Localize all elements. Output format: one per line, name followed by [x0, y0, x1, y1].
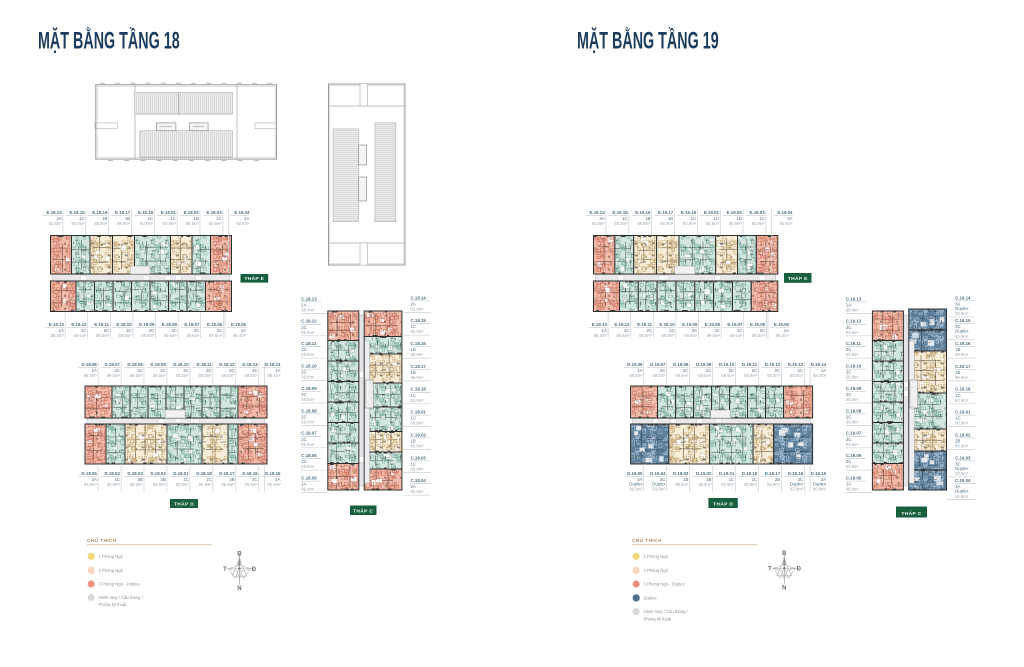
svg-text:C.19.15: C.19.15: [955, 318, 971, 323]
svg-text:88.9m²: 88.9m²: [153, 482, 167, 487]
svg-text:D.18.07: D.18.07: [105, 362, 121, 367]
svg-text:59.6m²: 59.6m²: [73, 333, 87, 338]
svg-text:B: B: [237, 551, 242, 557]
svg-text:60.9m²: 60.9m²: [744, 482, 758, 487]
svg-text:63.9m²: 63.9m²: [790, 487, 804, 492]
svg-text:59.6m²: 59.6m²: [846, 397, 860, 402]
svg-text:92.5m²: 92.5m²: [84, 482, 98, 487]
svg-text:85.9m²: 85.9m²: [411, 444, 425, 449]
svg-text:59.6m²: 59.6m²: [141, 333, 155, 338]
svg-text:59.6m²: 59.6m²: [301, 419, 315, 424]
svg-text:E.19.15: E.19.15: [612, 210, 628, 215]
svg-text:59.6m²: 59.6m²: [846, 464, 860, 469]
svg-text:E.18.17: E.18.17: [115, 210, 131, 215]
svg-text:C.19.07: C.19.07: [846, 431, 862, 436]
svg-text:E.18.13: E.18.13: [49, 322, 65, 327]
svg-text:60.9m²: 60.9m²: [140, 221, 154, 226]
svg-text:85.9m²: 85.9m²: [955, 444, 969, 449]
svg-text:E.19.07: E.19.07: [727, 322, 743, 327]
svg-text:59.5m²: 59.5m²: [222, 373, 236, 378]
svg-text:C.19.10: C.19.10: [846, 364, 862, 369]
svg-text:3 Phòng Ngủ - Duplex: 3 Phòng Ngủ - Duplex: [644, 582, 686, 587]
svg-text:88.4m²: 88.4m²: [301, 307, 315, 312]
svg-text:92.6m²: 92.6m²: [592, 221, 606, 226]
svg-text:60.9m²: 60.9m²: [209, 221, 223, 226]
svg-text:C.19.18: C.19.18: [955, 387, 971, 392]
svg-text:88.9m²: 88.9m²: [637, 221, 651, 226]
svg-text:88.4m²: 88.4m²: [267, 373, 281, 378]
svg-text:E.18.11: E.18.11: [94, 322, 109, 327]
svg-text:C.19.11: C.19.11: [846, 341, 862, 346]
svg-text:D.19.09: D.19.09: [696, 362, 712, 367]
svg-text:85.9m²: 85.9m²: [186, 221, 200, 226]
svg-text:59.5m²: 59.5m²: [652, 373, 666, 378]
svg-text:D.19.05: D.19.05: [627, 471, 643, 476]
svg-text:C.19.06: C.19.06: [846, 453, 862, 458]
svg-text:59.6m²: 59.6m²: [119, 333, 133, 338]
svg-text:Hành lang / Cầu thang /: Hành lang / Cầu thang /: [644, 609, 689, 614]
svg-text:E.19.09: E.19.09: [682, 322, 698, 327]
svg-text:E.19.18: E.19.18: [681, 210, 697, 215]
svg-text:63.9m²: 63.9m²: [955, 334, 969, 339]
svg-text:Phòng kỹ thuật: Phòng kỹ thuật: [644, 616, 673, 621]
svg-text:88.9m²: 88.9m²: [130, 482, 144, 487]
svg-text:60.9m²: 60.9m²: [176, 482, 190, 487]
svg-text:59.5m²: 59.5m²: [199, 373, 213, 378]
svg-text:60.9m²: 60.9m²: [683, 221, 697, 226]
svg-text:D.19.15: D.19.15: [811, 471, 827, 476]
svg-text:E.19.01: E.19.01: [704, 210, 720, 215]
svg-text:92.6m²: 92.6m²: [236, 221, 250, 226]
svg-text:C.19.05: C.19.05: [846, 476, 862, 481]
svg-text:D.19.03: D.19.03: [673, 471, 689, 476]
svg-text:T: T: [223, 567, 227, 573]
svg-text:D.18.11: D.18.11: [197, 362, 213, 367]
svg-text:88.9m²: 88.9m²: [411, 352, 425, 357]
svg-text:88.9m²: 88.9m²: [411, 375, 425, 380]
svg-text:B: B: [782, 551, 787, 557]
svg-text:D.18.12: D.18.12: [219, 362, 235, 367]
svg-text:C.18.07: C.18.07: [301, 431, 317, 436]
svg-text:C.19.03: C.19.03: [955, 455, 971, 460]
svg-text:D.19.04: D.19.04: [650, 471, 666, 476]
svg-text:E.19.04: E.19.04: [777, 210, 793, 215]
svg-text:D.18.04: D.18.04: [105, 471, 121, 476]
svg-text:60.9m²: 60.9m²: [706, 221, 720, 226]
svg-text:THÁP E: THÁP E: [244, 275, 264, 282]
svg-text:E.18.03: E.18.03: [207, 210, 223, 215]
svg-text:88.4m²: 88.4m²: [51, 333, 65, 338]
svg-text:D.18.06: D.18.06: [82, 362, 98, 367]
svg-text:C.18.02: C.18.02: [411, 432, 427, 437]
svg-text:C.19.14: C.19.14: [955, 295, 971, 300]
svg-text:59.5m²: 59.5m²: [790, 373, 804, 378]
svg-text:59.6m²: 59.6m²: [846, 352, 860, 357]
svg-text:59.6m²: 59.6m²: [301, 375, 315, 380]
svg-text:59.5m²: 59.5m²: [107, 373, 121, 378]
svg-text:D.19.16: D.19.16: [788, 471, 804, 476]
svg-text:88.9m²: 88.9m²: [955, 352, 969, 357]
svg-text:88.4m²: 88.4m²: [846, 487, 860, 492]
svg-text:88.4m²: 88.4m²: [846, 307, 860, 312]
svg-text:60.9m²: 60.9m²: [955, 398, 969, 403]
svg-text:C.18.14: C.18.14: [411, 295, 427, 300]
svg-text:60.9m²: 60.9m²: [411, 421, 425, 426]
svg-text:1 Phòng Ngủ: 1 Phòng Ngủ: [644, 554, 669, 559]
svg-text:E.19.03: E.19.03: [750, 210, 766, 215]
svg-text:59.6m²: 59.6m²: [662, 333, 676, 338]
svg-text:D.18.02: D.18.02: [150, 471, 166, 476]
svg-text:D.18.10: D.18.10: [173, 362, 189, 367]
svg-text:THÁP D: THÁP D: [713, 500, 733, 507]
svg-text:88.4m²: 88.4m²: [301, 487, 315, 492]
svg-text:88.4m²: 88.4m²: [813, 373, 827, 378]
svg-text:59.6m²: 59.6m²: [639, 333, 653, 338]
svg-text:C.19.17: C.19.17: [955, 364, 971, 369]
svg-text:D.18.17: D.18.17: [219, 471, 235, 476]
svg-text:D.18.05: D.18.05: [82, 471, 98, 476]
svg-text:60.9m²: 60.9m²: [163, 221, 177, 226]
svg-text:E.19.13: E.19.13: [592, 322, 608, 327]
svg-text:D.18.03: D.18.03: [127, 471, 143, 476]
svg-text:D.19.10: D.19.10: [719, 362, 735, 367]
svg-text:C.18.04: C.18.04: [411, 478, 427, 483]
svg-text:E.19.06: E.19.06: [750, 322, 766, 327]
svg-text:88.9m²: 88.9m²: [660, 221, 674, 226]
svg-text:D.18.08: D.18.08: [127, 362, 143, 367]
svg-text:E.18.14: E.18.14: [47, 210, 63, 215]
svg-text:Duplex: Duplex: [644, 595, 658, 600]
svg-text:E.18.04: E.18.04: [234, 210, 250, 215]
svg-text:60.9m²: 60.9m²: [955, 421, 969, 426]
svg-text:D.19.02: D.19.02: [696, 471, 712, 476]
svg-text:D.18.13: D.18.13: [242, 362, 258, 367]
svg-text:C.19.16: C.19.16: [955, 341, 971, 346]
svg-text:C.18.17: C.18.17: [411, 364, 427, 369]
svg-text:92.5m²: 92.5m²: [267, 482, 281, 487]
svg-text:60.9m²: 60.9m²: [107, 482, 121, 487]
svg-text:E.18.09: E.18.09: [139, 322, 155, 327]
svg-text:85.9m²: 85.9m²: [729, 221, 743, 226]
svg-text:D.18.18: D.18.18: [196, 471, 212, 476]
svg-text:88.4m²: 88.4m²: [629, 373, 643, 378]
svg-text:59.5m²: 59.5m²: [245, 373, 259, 378]
svg-text:E.18.08: E.18.08: [162, 322, 178, 327]
svg-text:E.18.15: E.18.15: [69, 210, 85, 215]
svg-text:59.6m²: 59.6m²: [846, 375, 860, 380]
svg-text:90.9m²: 90.9m²: [629, 487, 643, 492]
svg-text:88.4m²: 88.4m²: [776, 333, 790, 338]
svg-text:88.9m²: 88.9m²: [117, 221, 131, 226]
svg-text:59.6m²: 59.6m²: [707, 333, 721, 338]
svg-text:C.19.12: C.19.12: [846, 319, 862, 324]
svg-text:59.6m²: 59.6m²: [301, 464, 315, 469]
svg-text:C.18.06: C.18.06: [301, 453, 317, 458]
svg-text:D.18.09: D.18.09: [150, 362, 166, 367]
svg-text:C.18.01: C.18.01: [411, 410, 427, 415]
svg-text:88.4m²: 88.4m²: [594, 333, 608, 338]
svg-text:D.18.15: D.18.15: [265, 471, 281, 476]
svg-text:C.18.16: C.18.16: [411, 341, 427, 346]
svg-text:E.18.12: E.18.12: [71, 322, 87, 327]
svg-text:E.18.16: E.18.16: [92, 210, 108, 215]
svg-text:59.6m²: 59.6m²: [752, 333, 766, 338]
svg-text:C.19.09: C.19.09: [846, 386, 862, 391]
svg-text:E.19.17: E.19.17: [658, 210, 674, 215]
svg-text:E.19.10: E.19.10: [660, 322, 676, 327]
svg-text:MẶT BẰNG TẦNG 18: MẶT BẰNG TẦNG 18: [38, 25, 180, 54]
svg-text:63.9m²: 63.9m²: [652, 487, 666, 492]
svg-text:C.18.05: C.18.05: [301, 476, 317, 481]
svg-text:E.19.02: E.19.02: [727, 210, 743, 215]
svg-text:E.18.10: E.18.10: [117, 322, 133, 327]
svg-text:92.6m²: 92.6m²: [779, 221, 793, 226]
svg-text:C.18.18: C.18.18: [411, 387, 427, 392]
svg-text:C.18.09: C.18.09: [301, 386, 317, 391]
svg-text:N: N: [782, 586, 786, 592]
svg-text:59.5m²: 59.5m²: [698, 373, 712, 378]
svg-text:E.18.01: E.18.01: [161, 210, 177, 215]
svg-text:92.6m²: 92.6m²: [411, 306, 425, 311]
svg-text:N: N: [237, 586, 241, 592]
svg-text:59.6m²: 59.6m²: [186, 333, 200, 338]
svg-text:60.9m²: 60.9m²: [199, 482, 213, 487]
svg-text:63.9m²: 63.9m²: [955, 471, 969, 476]
svg-text:C.18.11: C.18.11: [301, 341, 317, 346]
svg-text:88.4m²: 88.4m²: [84, 373, 98, 378]
svg-text:Đ: Đ: [252, 567, 257, 573]
svg-text:88.9m²: 88.9m²: [955, 375, 969, 380]
svg-text:D.18.16: D.18.16: [242, 471, 258, 476]
svg-text:59.6m²: 59.6m²: [846, 419, 860, 424]
svg-text:C.18.03: C.18.03: [411, 455, 427, 460]
svg-text:88.9m²: 88.9m²: [698, 482, 712, 487]
svg-text:C.18.13: C.18.13: [301, 296, 317, 301]
svg-text:D.19.13: D.19.13: [788, 362, 804, 367]
svg-text:D.19.01: D.19.01: [719, 471, 735, 476]
svg-text:59.5m²: 59.5m²: [176, 373, 190, 378]
svg-text:85.9m²: 85.9m²: [222, 482, 236, 487]
svg-text:C.19.04: C.19.04: [955, 478, 971, 483]
svg-text:2 Phòng Ngủ: 2 Phòng Ngủ: [644, 568, 669, 573]
svg-text:60.9m²: 60.9m²: [721, 482, 735, 487]
svg-text:3 Phòng Ngủ - Duplex: 3 Phòng Ngủ - Duplex: [99, 582, 141, 587]
svg-text:59.6m²: 59.6m²: [301, 330, 315, 335]
svg-text:E.18.07: E.18.07: [184, 322, 200, 327]
svg-text:59.6m²: 59.6m²: [301, 397, 315, 402]
svg-text:59.5m²: 59.5m²: [744, 373, 758, 378]
svg-text:D.19.12: D.19.12: [765, 362, 781, 367]
svg-text:D.19.17: D.19.17: [765, 471, 781, 476]
svg-text:MẶT BẰNG TẦNG 19: MẶT BẰNG TẦNG 19: [577, 25, 719, 54]
svg-text:D.19.14: D.19.14: [811, 362, 827, 367]
svg-text:D.19.06: D.19.06: [627, 362, 643, 367]
svg-text:60.9m²: 60.9m²: [245, 482, 259, 487]
svg-text:C.19.13: C.19.13: [846, 296, 862, 301]
svg-text:88.9m²: 88.9m²: [94, 221, 108, 226]
svg-text:60.9m²: 60.9m²: [615, 221, 629, 226]
svg-text:D.18.14: D.18.14: [265, 362, 281, 367]
svg-text:E.19.05: E.19.05: [774, 322, 790, 327]
svg-text:THÁP C: THÁP C: [353, 507, 373, 514]
svg-text:88.9m²: 88.9m²: [675, 482, 689, 487]
svg-text:CHÚ THÍCH: CHÚ THÍCH: [632, 536, 662, 543]
svg-text:THÁP D: THÁP D: [174, 500, 194, 507]
svg-text:E.19.16: E.19.16: [635, 210, 651, 215]
svg-text:C.18.10: C.18.10: [301, 364, 317, 369]
svg-text:92.6m²: 92.6m²: [49, 221, 63, 226]
svg-text:Hành lang / Cầu thang /: Hành lang / Cầu thang /: [99, 595, 144, 600]
svg-text:59.6m²: 59.6m²: [846, 442, 860, 447]
svg-text:88.4m²: 88.4m²: [233, 333, 247, 338]
svg-text:E.19.14: E.19.14: [590, 210, 606, 215]
svg-text:D.19.11: D.19.11: [742, 362, 758, 367]
svg-text:59.6m²: 59.6m²: [616, 333, 630, 338]
svg-text:60.9m²: 60.9m²: [752, 221, 766, 226]
svg-text:2 Phòng Ngủ: 2 Phòng Ngủ: [99, 568, 124, 573]
svg-text:59.6m²: 59.6m²: [846, 330, 860, 335]
svg-text:C.18.15: C.18.15: [411, 318, 427, 323]
svg-text:92.9m²: 92.9m²: [955, 494, 969, 499]
svg-text:92.9m²: 92.9m²: [955, 311, 969, 316]
svg-text:59.6m²: 59.6m²: [96, 333, 110, 338]
svg-text:THÁP E: THÁP E: [788, 275, 808, 282]
svg-text:59.6m²: 59.6m²: [684, 333, 698, 338]
svg-text:E.19.08: E.19.08: [705, 322, 721, 327]
svg-text:59.5m²: 59.5m²: [767, 373, 781, 378]
svg-text:Phòng kỹ thuật: Phòng kỹ thuật: [99, 602, 128, 607]
svg-text:THÁP C: THÁP C: [901, 510, 921, 517]
svg-text:60.9m²: 60.9m²: [411, 466, 425, 471]
svg-text:59.5m²: 59.5m²: [153, 373, 167, 378]
svg-text:D.19.08: D.19.08: [673, 362, 689, 367]
svg-text:60.9m²: 60.9m²: [411, 329, 425, 334]
svg-text:59.6m²: 59.6m²: [164, 333, 178, 338]
svg-text:C.18.12: C.18.12: [301, 319, 317, 324]
svg-text:E.18.06: E.18.06: [207, 322, 223, 327]
svg-text:59.6m²: 59.6m²: [301, 352, 315, 357]
svg-text:85.9m²: 85.9m²: [767, 482, 781, 487]
svg-text:C.19.01: C.19.01: [955, 410, 971, 415]
svg-text:59.6m²: 59.6m²: [209, 333, 223, 338]
svg-text:59.5m²: 59.5m²: [675, 373, 689, 378]
svg-text:59.6m²: 59.6m²: [301, 442, 315, 447]
svg-text:1 Phòng Ngủ: 1 Phòng Ngủ: [99, 554, 124, 559]
svg-text:E.18.05: E.18.05: [231, 322, 247, 327]
svg-text:Đ: Đ: [797, 567, 802, 573]
svg-text:60.9m²: 60.9m²: [411, 398, 425, 403]
svg-text:59.5m²: 59.5m²: [130, 373, 144, 378]
svg-text:C.18.08: C.18.08: [301, 408, 317, 413]
svg-text:90.9m²: 90.9m²: [813, 487, 827, 492]
svg-text:60.9m²: 60.9m²: [72, 221, 86, 226]
svg-text:E.19.12: E.19.12: [614, 322, 630, 327]
svg-text:D.19.18: D.19.18: [742, 471, 758, 476]
svg-text:T: T: [768, 567, 772, 573]
svg-text:CHÚ THÍCH: CHÚ THÍCH: [87, 536, 117, 543]
svg-text:D.19.07: D.19.07: [650, 362, 666, 367]
svg-text:D.18.01: D.18.01: [173, 471, 189, 476]
svg-text:E.18.02: E.18.02: [184, 210, 200, 215]
svg-text:92.6m²: 92.6m²: [411, 489, 425, 494]
svg-text:C.19.02: C.19.02: [955, 432, 971, 437]
svg-text:59.5m²: 59.5m²: [721, 373, 735, 378]
svg-text:E.19.11: E.19.11: [637, 322, 652, 327]
svg-text:59.6m²: 59.6m²: [729, 333, 743, 338]
svg-text:E.18.18: E.18.18: [138, 210, 154, 215]
svg-text:C.19.08: C.19.08: [846, 408, 862, 413]
